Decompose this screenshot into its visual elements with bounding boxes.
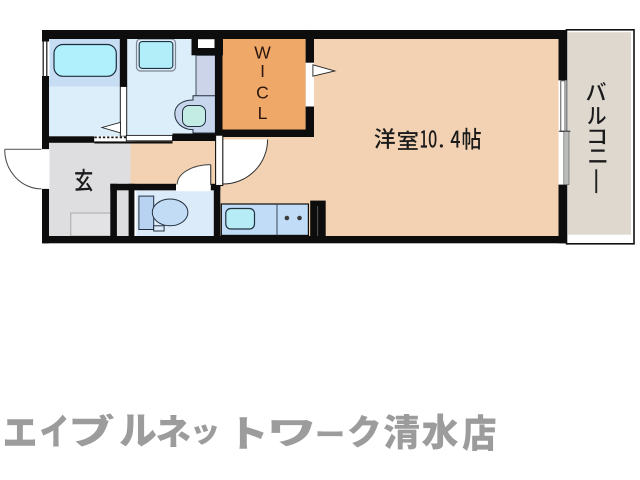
svg-text:I: I <box>260 61 265 81</box>
svg-text:L: L <box>258 103 268 123</box>
svg-text:C: C <box>256 82 269 102</box>
svg-text:W: W <box>254 42 271 62</box>
